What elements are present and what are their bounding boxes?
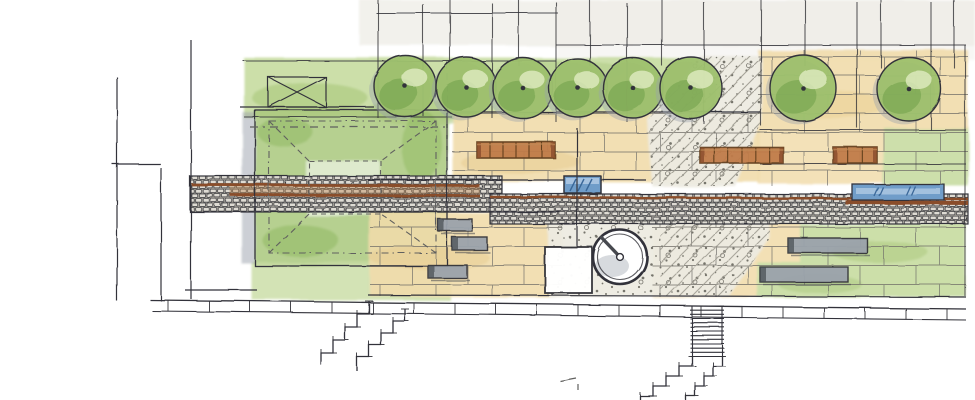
timber-bench	[833, 147, 877, 163]
stone-seat	[760, 267, 851, 285]
tree-trunk-dot	[464, 85, 469, 90]
west-boundary	[112, 40, 257, 301]
kerb-ticks	[168, 300, 947, 320]
fountain-pad	[545, 247, 592, 293]
tree-trunk-dot	[907, 87, 912, 92]
fountain-hub	[617, 254, 624, 261]
step-end-shade	[760, 267, 766, 282]
timber-bench	[700, 147, 783, 163]
plan-canvas	[0, 0, 975, 400]
rail	[230, 195, 480, 196]
tree-trunk-dot	[801, 86, 806, 91]
tree-highlight	[799, 69, 827, 89]
step-slab	[788, 238, 867, 253]
pavilion-shade-blob	[401, 109, 441, 181]
site-plan-sketch	[0, 0, 975, 400]
tree-trunk-dot	[689, 86, 694, 91]
stair-flight-sw-ticks	[357, 309, 409, 361]
stair-flight-sw-ticks	[321, 301, 373, 357]
pavilion-shade-blob	[257, 118, 313, 146]
rail	[192, 185, 480, 186]
tree-trunk-dot	[403, 84, 408, 89]
step-end-shade	[452, 237, 458, 250]
stone-step	[428, 265, 470, 281]
survey-mark	[560, 378, 578, 390]
kerb-top	[150, 300, 966, 309]
stair-flight-s-ticks	[640, 356, 696, 400]
step-end-shade	[428, 265, 434, 278]
layer-site-edge	[150, 300, 966, 400]
step-end-shade	[438, 219, 444, 231]
step-slab	[760, 267, 848, 282]
tree-trunk-dot	[521, 86, 526, 91]
pavilion-shade-blob	[262, 224, 338, 256]
stone-step	[438, 219, 475, 234]
kerb-bottom	[152, 311, 966, 320]
rail-heavy	[845, 202, 968, 203]
step-end-shade	[788, 238, 794, 253]
tree-trunk-dot	[631, 86, 636, 91]
lawn-shade-blob	[252, 83, 368, 113]
stone-seat	[788, 238, 870, 256]
stair-flight-sw	[321, 301, 369, 365]
timber-bench	[477, 142, 555, 158]
tree-trunk-dot	[576, 86, 581, 91]
stone-step	[452, 237, 490, 253]
channel-highlight	[856, 188, 940, 194]
stair-flight-sw	[357, 309, 405, 371]
stair-treads-south	[690, 306, 724, 356]
